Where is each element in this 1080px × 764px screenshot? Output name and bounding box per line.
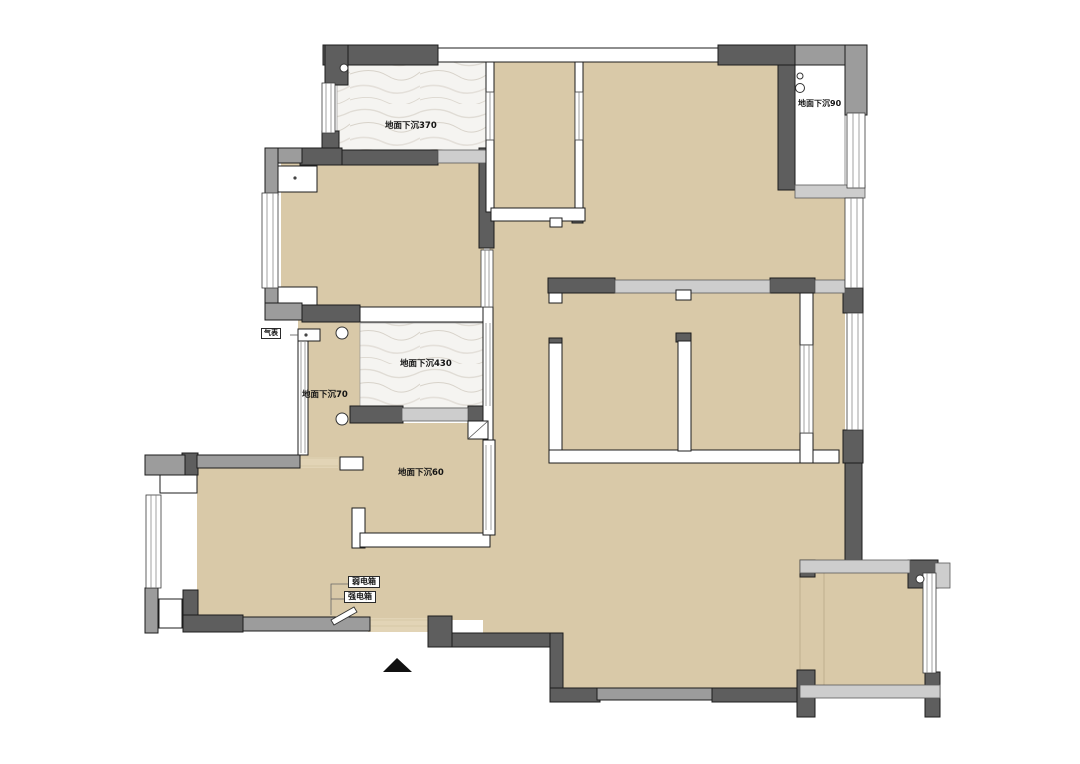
window xyxy=(481,250,493,307)
wall xyxy=(549,293,562,303)
window xyxy=(486,92,494,140)
wall xyxy=(548,278,615,293)
wall xyxy=(350,406,403,423)
niche xyxy=(278,166,317,192)
pipe-circle xyxy=(797,73,803,79)
window xyxy=(575,92,583,140)
wall xyxy=(438,150,488,163)
floor-room-60 xyxy=(352,423,483,535)
wall xyxy=(845,45,867,115)
wall xyxy=(402,408,468,421)
wall xyxy=(778,65,795,190)
pipe-circle xyxy=(336,327,348,339)
pipe-circle xyxy=(340,64,348,72)
pipe-circle xyxy=(336,413,348,425)
wall xyxy=(795,45,845,65)
wall xyxy=(300,148,342,165)
wall xyxy=(676,290,691,300)
floor-hall-upper xyxy=(490,213,581,278)
pipe-circle xyxy=(916,575,924,583)
gas-meter-symbol xyxy=(298,329,320,341)
niche-dot xyxy=(293,176,296,179)
wall xyxy=(935,563,950,588)
window xyxy=(847,113,865,188)
wall xyxy=(197,455,300,468)
gas-meter-dot xyxy=(304,333,307,336)
threshold-corridor xyxy=(300,457,338,468)
room-recess-90 xyxy=(795,65,845,188)
wall xyxy=(800,433,813,463)
wall xyxy=(800,293,813,345)
wall xyxy=(265,148,278,195)
wall xyxy=(845,463,862,563)
window xyxy=(146,495,161,588)
wall xyxy=(550,218,562,227)
wall xyxy=(550,688,600,702)
window xyxy=(847,313,863,430)
wall xyxy=(438,48,718,62)
floor-living xyxy=(579,62,778,290)
wall xyxy=(428,616,452,647)
wall xyxy=(815,280,845,293)
wall xyxy=(360,533,490,547)
room-label-sunken-370: 地面下沉370 xyxy=(385,122,437,131)
weak-current-box-label: 弱电箱 xyxy=(348,576,380,588)
door-symbol xyxy=(468,421,488,439)
strong-current-box-label: 强电箱 xyxy=(344,591,376,603)
wall xyxy=(491,208,585,221)
window xyxy=(845,198,863,288)
window xyxy=(322,83,335,133)
wall xyxy=(549,450,839,463)
wall xyxy=(843,430,863,463)
wall xyxy=(800,560,910,573)
room-label-sunken-430: 地面下沉430 xyxy=(400,360,452,369)
entrance-arrow-icon xyxy=(383,658,412,672)
wall xyxy=(145,588,158,633)
wall xyxy=(549,343,562,453)
floor-family xyxy=(483,460,845,633)
floor-room-bottomright xyxy=(813,573,925,685)
wall xyxy=(338,150,438,165)
window xyxy=(262,193,278,288)
wall xyxy=(340,457,363,470)
wall xyxy=(550,633,563,695)
threshold-entry xyxy=(368,618,428,632)
floor-living-right xyxy=(778,190,845,290)
wall xyxy=(615,280,770,293)
wall xyxy=(712,688,797,702)
floor-room-topmiddle xyxy=(491,60,577,213)
niche xyxy=(159,599,182,628)
wall xyxy=(145,455,185,475)
wall xyxy=(843,288,863,313)
wall xyxy=(452,633,563,647)
wall xyxy=(800,685,940,698)
window xyxy=(800,345,813,433)
room-balcony-370 xyxy=(337,62,487,152)
wall xyxy=(243,617,370,631)
floor-plan: 地面下沉370 地面下沉90 地面下沉430 地面下沉70 地面下沉60 弱电箱… xyxy=(0,0,1080,764)
window xyxy=(923,573,936,673)
room-label-sunken-90: 地面下沉90 xyxy=(798,100,841,108)
gas-meter-label: 气表 xyxy=(261,328,281,339)
wall xyxy=(483,440,495,535)
floor-plan-drawing xyxy=(0,0,1080,764)
wall xyxy=(678,341,691,451)
wall xyxy=(597,688,712,700)
room-label-sunken-70: 地面下沉70 xyxy=(302,391,348,400)
wall xyxy=(483,307,493,440)
wall xyxy=(265,303,302,320)
wall xyxy=(360,307,487,322)
wall xyxy=(302,305,360,322)
wall xyxy=(770,278,815,293)
room-label-sunken-60: 地面下沉60 xyxy=(398,469,444,478)
floor-hall xyxy=(490,278,548,463)
wall xyxy=(183,615,243,632)
wall xyxy=(718,45,796,65)
pipe-circle xyxy=(796,84,805,93)
